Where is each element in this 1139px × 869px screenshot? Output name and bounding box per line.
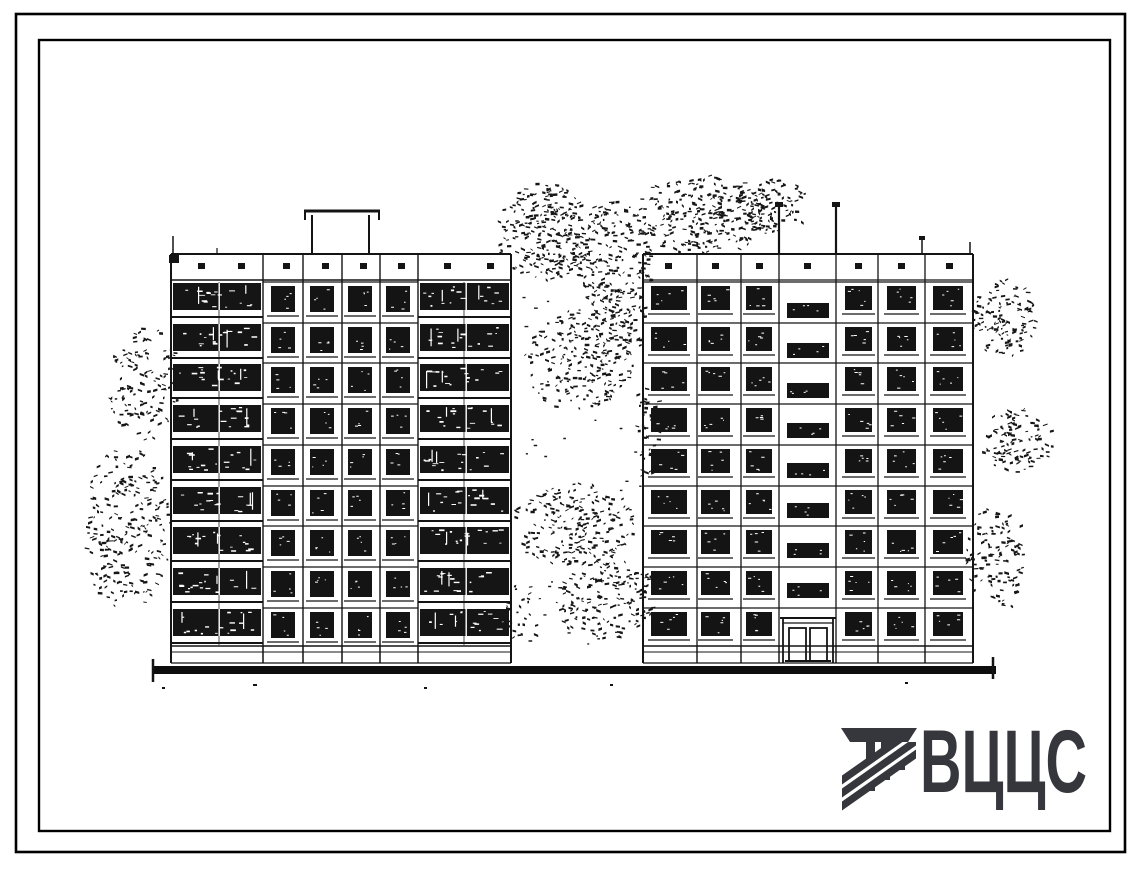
ground-speck [162, 687, 165, 689]
drawing-sheet: ВЦЦС [0, 0, 1139, 869]
ground-speck [610, 684, 613, 686]
ground-speck [905, 682, 908, 684]
roof-post-cap [832, 202, 840, 207]
ground-speck [424, 687, 427, 689]
emblem-cap [841, 728, 917, 742]
entrance-door [780, 618, 836, 663]
left-building-elevation [169, 211, 511, 663]
tree-foliage [738, 178, 806, 233]
parapet-vents [198, 263, 494, 269]
parapet-corner-mark [169, 255, 179, 263]
tree-foliage [572, 201, 653, 313]
logo-text: ВЦЦС [920, 711, 1087, 811]
facade-lines [171, 211, 511, 663]
tree-foliage [109, 328, 179, 441]
right-building-elevation [643, 202, 973, 663]
tree-foliage [524, 310, 634, 410]
door-leaf [789, 628, 806, 661]
tree-foliage [514, 482, 634, 566]
tree-foliage [85, 450, 172, 607]
roof-post-cap [919, 236, 925, 240]
tree-foliage [556, 556, 661, 640]
windows [651, 286, 963, 636]
door-leaf [810, 628, 827, 661]
tree-foliage [982, 408, 1054, 473]
tree-foliage [965, 508, 1025, 608]
ground-line [153, 657, 996, 689]
ground-speck [253, 684, 257, 686]
ground-bar [153, 666, 996, 674]
logo-emblem-icon [841, 724, 917, 811]
scan-texture [655, 288, 963, 633]
windows [271, 286, 410, 638]
tree-foliage [972, 278, 1038, 357]
parapet-vents [665, 263, 953, 269]
publisher-logo: ВЦЦС [841, 711, 1087, 811]
